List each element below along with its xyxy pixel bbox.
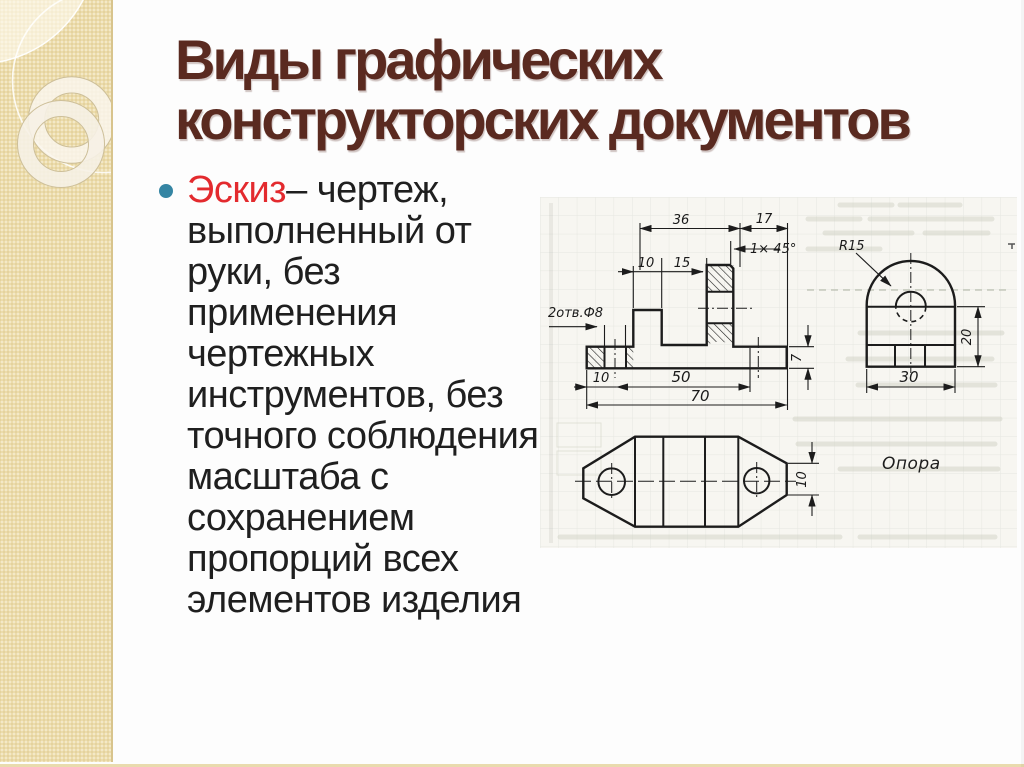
dim-label-50: 50 [671, 368, 690, 386]
dim-label-rib-10: 10 [638, 256, 655, 271]
bullet-term: Эскиз [187, 169, 286, 211]
bullet-line: инструментов, без [187, 375, 538, 416]
technical-drawing-svg: 36 17 1× 45° 10 15 2отв.Ф8 7 10 50 70 [540, 197, 1017, 548]
sidebar-decoration [0, 0, 113, 762]
bullet-line: точного соблюдения [187, 416, 538, 457]
dim-label-base-10: 10 [593, 371, 610, 386]
technical-drawing: 36 17 1× 45° 10 15 2отв.Ф8 7 10 50 70 [540, 197, 1017, 548]
dim-label-7: 7 [790, 353, 805, 362]
bullet-line: элементов изделия [187, 580, 538, 621]
part-caption: Опора [882, 454, 941, 474]
dim-label-30: 30 [899, 368, 918, 386]
bullet-item: Эскиз– чертеж, выполненный от руки, без … [187, 170, 538, 621]
bullet-line: применения [187, 293, 538, 334]
dim-label-20: 20 [960, 329, 975, 346]
bullet-line: Эскиз– чертеж, [187, 170, 538, 211]
dim-label-15: 15 [674, 256, 691, 271]
bullet-line: выполненный от [187, 211, 538, 252]
title-line-1: Виды графических [175, 28, 661, 91]
chamfer-note: 1× 45° [750, 242, 796, 257]
holes-note: 2отв.Ф8 [548, 306, 603, 321]
dim-label-17: 17 [756, 212, 773, 227]
dim-label-36: 36 [673, 213, 690, 228]
bullet-line: чертежных [187, 334, 538, 375]
decorative-circles-icon [0, 0, 111, 762]
bullet-line: масштаба с [187, 457, 538, 498]
presentation-slide: Виды графическихконструкторских документ… [0, 0, 1024, 767]
bullet-line: сохранением [187, 498, 538, 539]
bullet-line: пропорций всех [187, 539, 538, 580]
title-line-2: конструкторских документов [175, 88, 909, 151]
dim-label-top-10: 10 [795, 471, 810, 488]
slide-title: Виды графическихконструкторских документ… [175, 30, 909, 150]
bullet-term-rest: – чертеж, [286, 169, 448, 211]
bullet-marker-icon [159, 184, 173, 198]
radius-note-r15: R15 [839, 239, 865, 254]
bullet-line: руки, без [187, 252, 538, 293]
dim-label-70: 70 [690, 387, 709, 405]
